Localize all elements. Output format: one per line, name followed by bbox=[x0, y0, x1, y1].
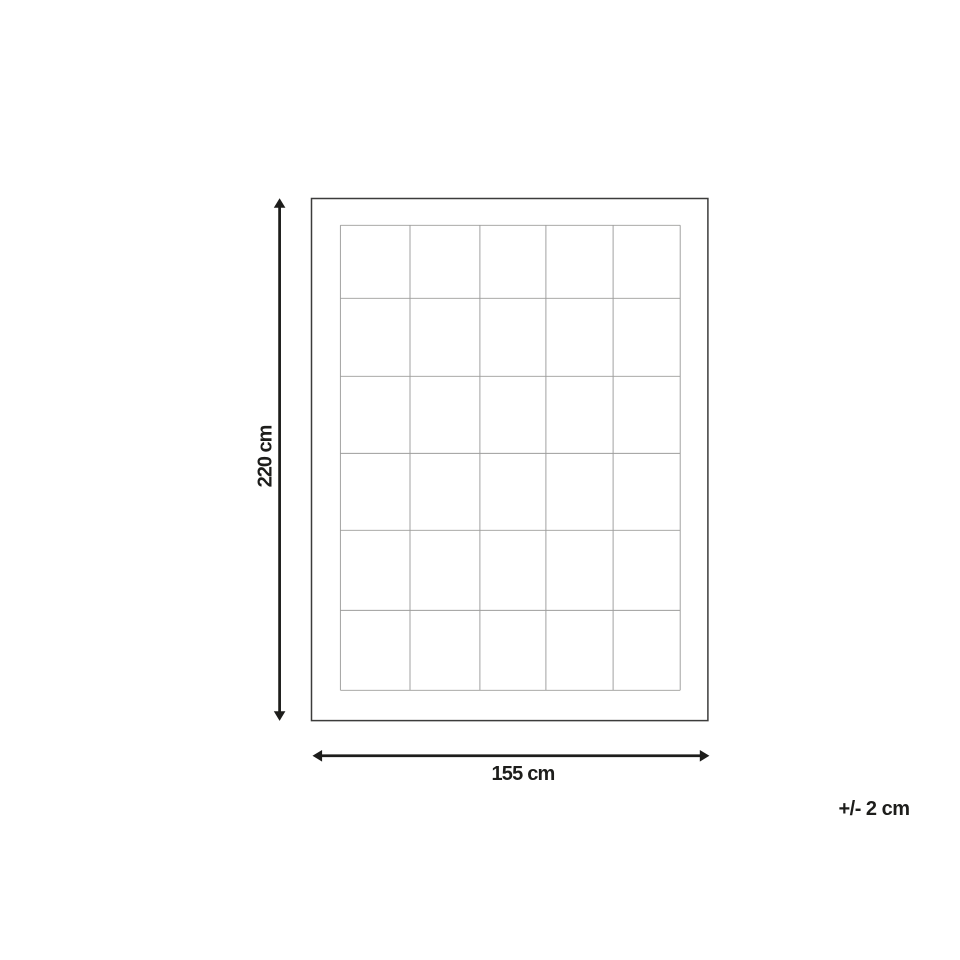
svg-text:220 cm: 220 cm bbox=[254, 425, 276, 487]
svg-text:+/- 2 cm: +/- 2 cm bbox=[838, 798, 909, 820]
svg-text:155 cm: 155 cm bbox=[491, 763, 554, 785]
